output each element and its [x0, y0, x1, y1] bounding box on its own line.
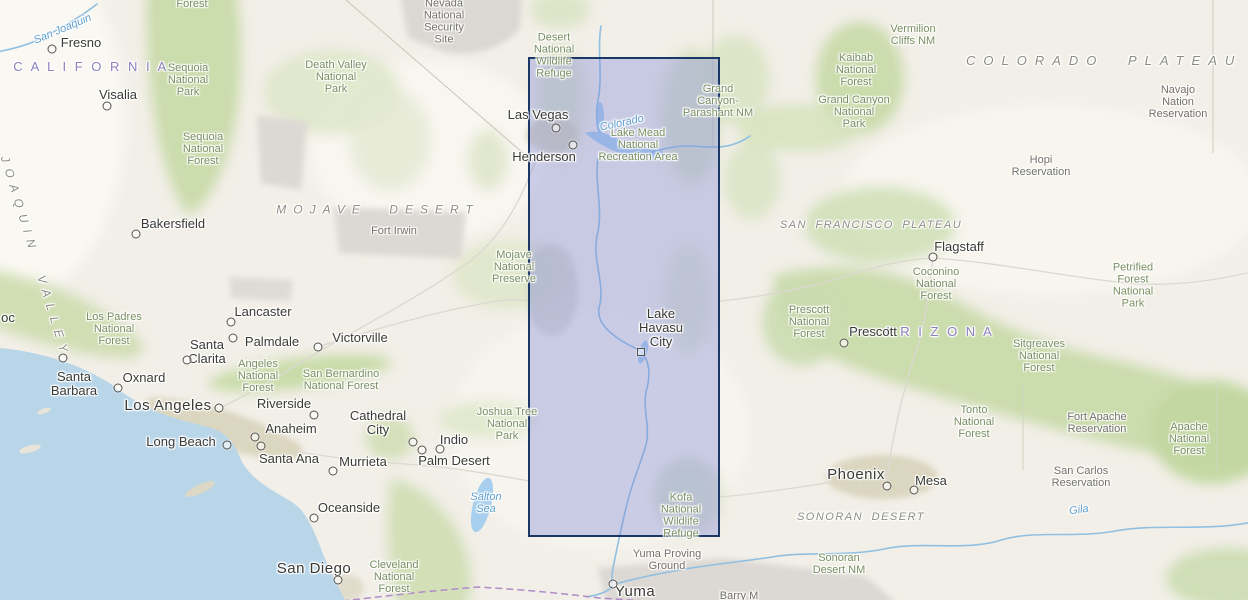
- map-canvas[interactable]: ForestSequoia National ParkSequoia Natio…: [0, 0, 1248, 600]
- selection-rectangle[interactable]: [528, 57, 720, 537]
